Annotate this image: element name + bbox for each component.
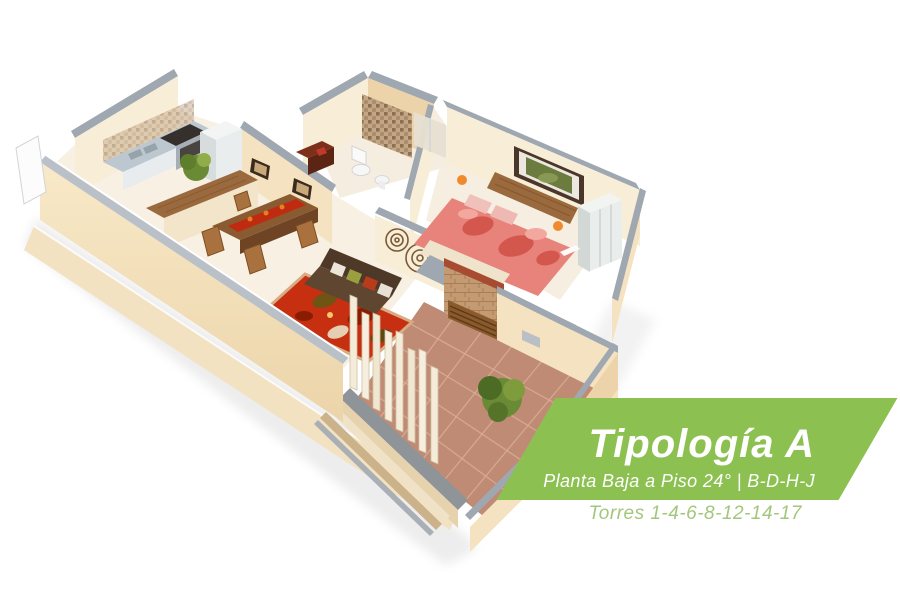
marketing-image: Tipología A Planta Baja a Piso 24° | B-D… [0,0,900,600]
banner-title: Tipología A [543,424,815,464]
bedside-lamp-left [457,175,467,185]
towers-line: Torres 1-4-6-8-12-14-17 [588,504,802,523]
bedside-lamp-right [553,221,563,231]
typology-banner: Tipología A Planta Baja a Piso 24° | B-D… [543,398,815,500]
banner-subtitle: Planta Baja a Piso 24° | B-D-H-J [543,472,815,490]
